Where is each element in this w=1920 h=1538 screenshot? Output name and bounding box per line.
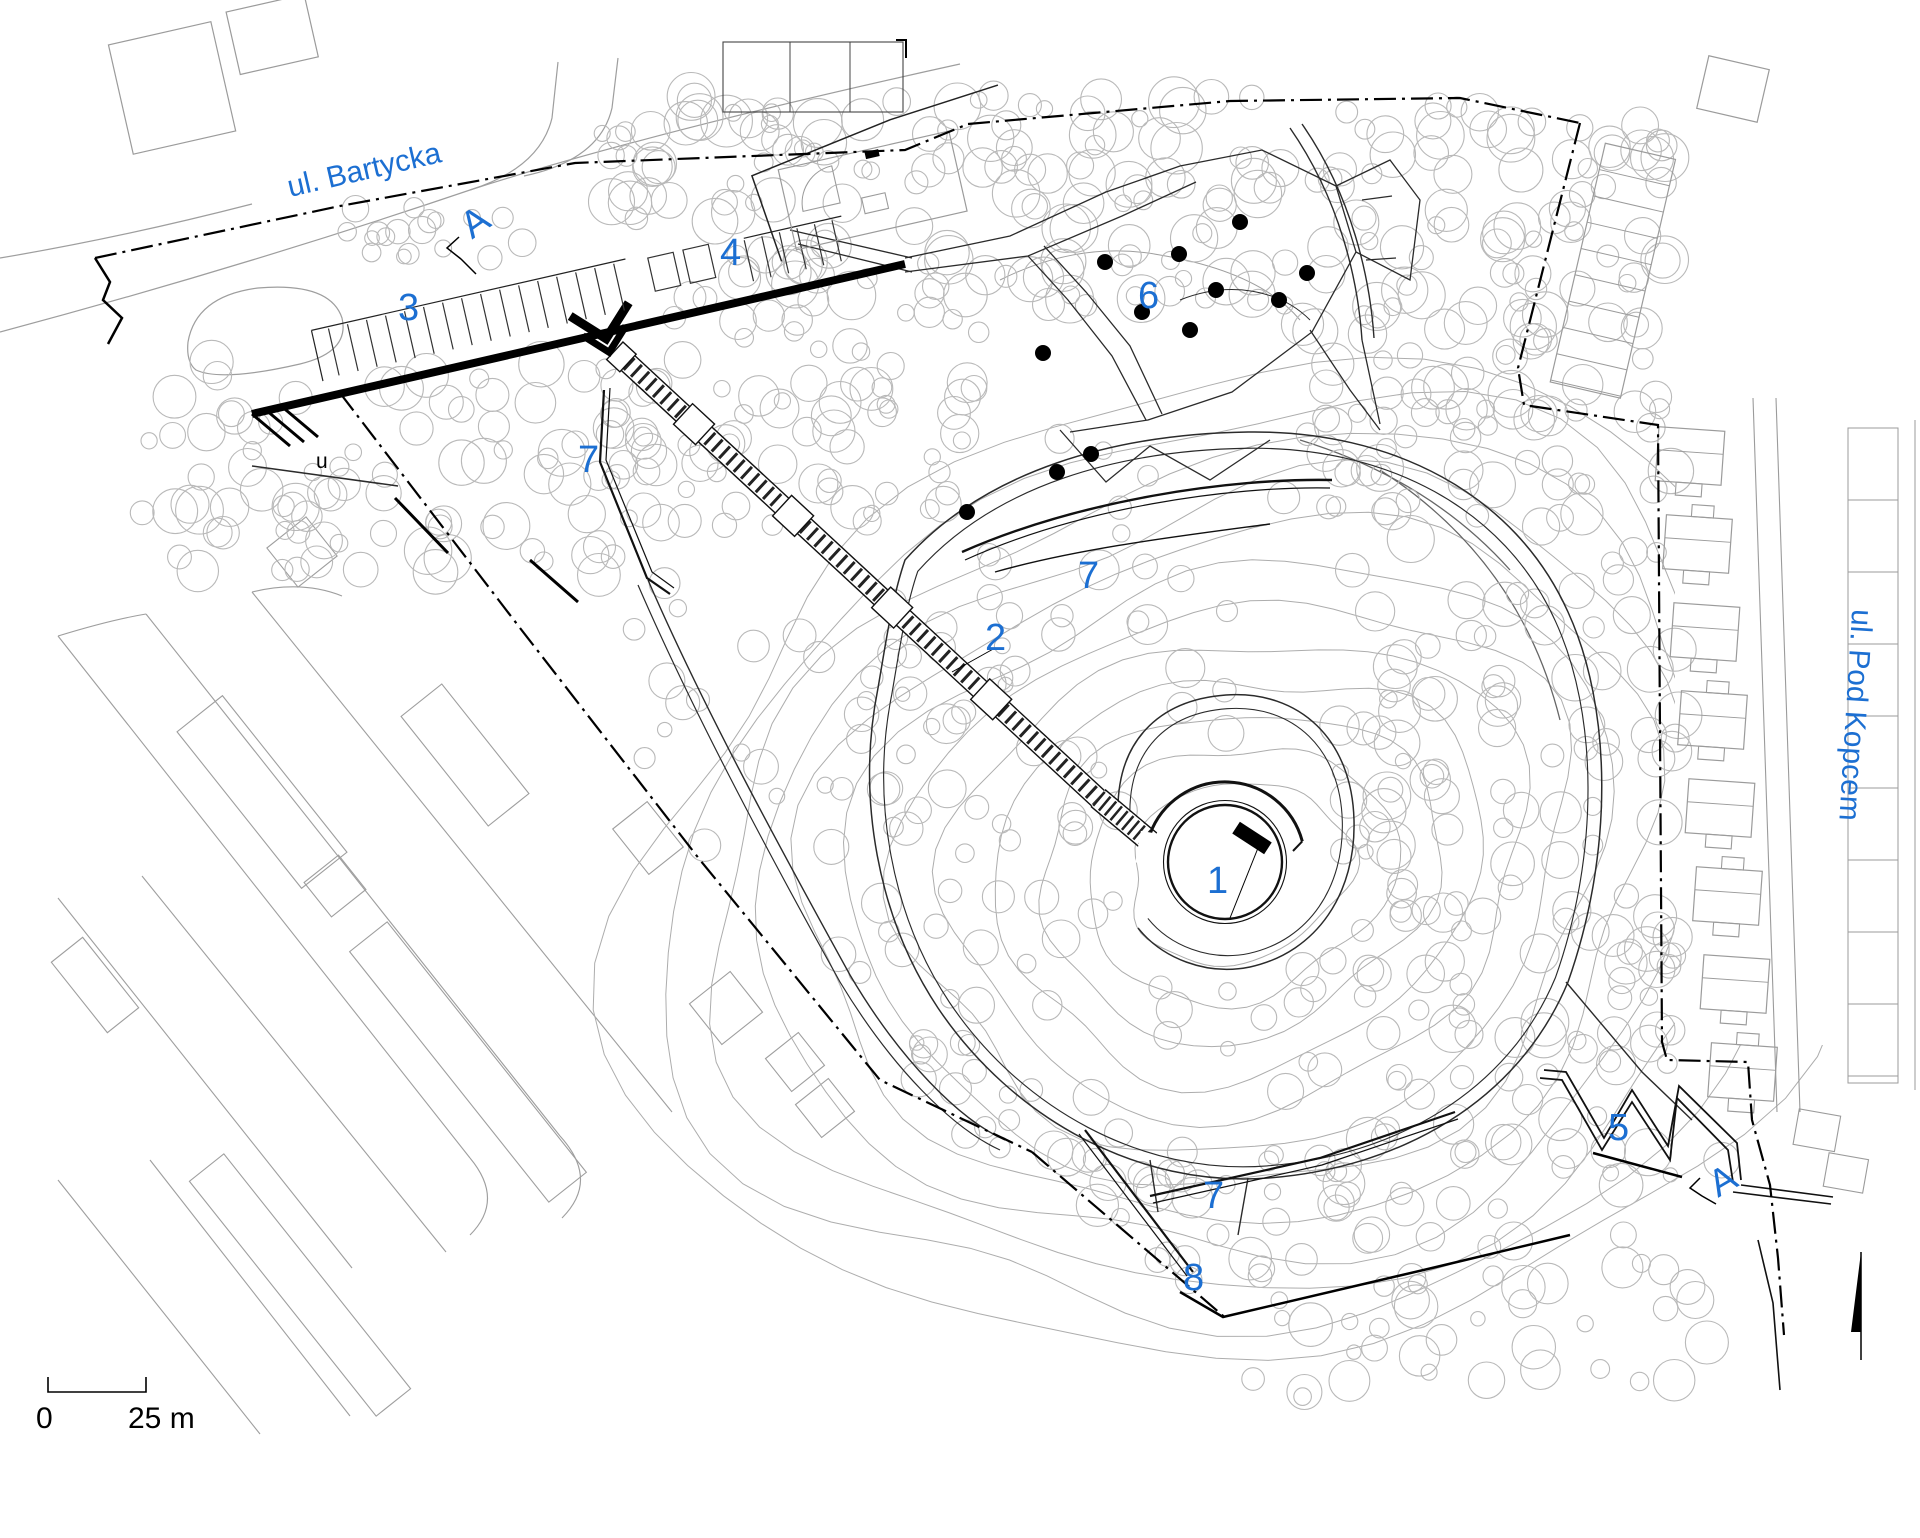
symbols-layer	[48, 195, 1861, 1392]
tiny-u-annotation: u	[316, 450, 328, 473]
map-label-7-wall-mid: 7	[1078, 555, 1099, 597]
map-label-3-parking: 3	[398, 287, 419, 329]
map-label-6-grove: 6	[1138, 275, 1159, 317]
map-label-8-gate: 8	[1183, 1257, 1204, 1299]
site-plan-page: ul. Bartycka ul. Pod Kopcem 1 2 3 4 5 6 …	[0, 0, 1920, 1538]
scale-bar-distance: 25 m	[128, 1402, 195, 1435]
site-boundary-layer	[95, 98, 1784, 1335]
section-marker-a-north: A	[453, 198, 498, 247]
map-label-5-ramp: 5	[1608, 1107, 1629, 1149]
scale-bar-zero: 0	[36, 1402, 53, 1435]
street-label-bartycka: ul. Bartycka	[284, 136, 444, 203]
map-label-1-viewpoint: 1	[1207, 860, 1228, 902]
street-label-pod-kopcem: ul. Pod Kopcem	[1832, 608, 1878, 821]
map-label-7-wall-west: 7	[578, 439, 599, 481]
site-plan-drawing: ul. Bartycka ul. Pod Kopcem 1 2 3 4 5 6 …	[0, 0, 1920, 1538]
map-label-4-plaza: 4	[720, 232, 741, 274]
map-label-7-wall-south: 7	[1203, 1175, 1224, 1217]
map-label-2-stairs: 2	[985, 617, 1006, 659]
